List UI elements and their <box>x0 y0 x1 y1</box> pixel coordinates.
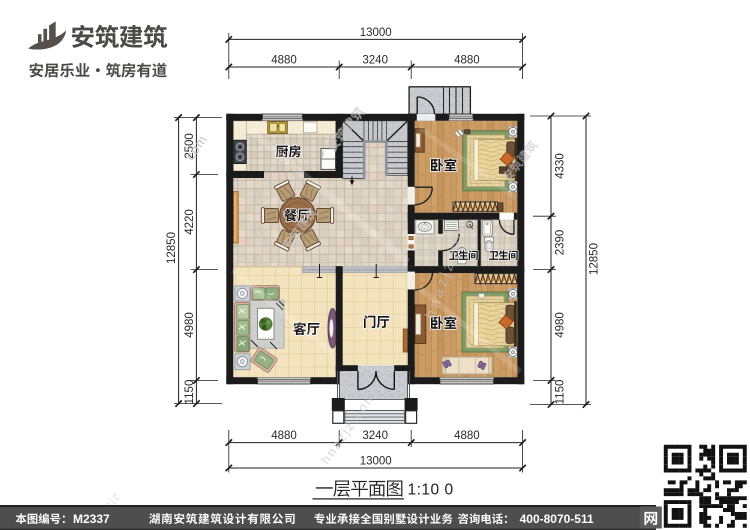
svg-text:4880: 4880 <box>271 430 297 442</box>
svg-text:3240: 3240 <box>362 54 388 66</box>
svg-text:400-8070-511: 400-8070-511 <box>520 512 594 526</box>
svg-text:4880: 4880 <box>271 54 297 66</box>
svg-text:4220: 4220 <box>184 209 196 235</box>
svg-text:4330: 4330 <box>555 153 567 179</box>
svg-text:1:10 0: 1:10 0 <box>408 481 454 498</box>
svg-text:13000: 13000 <box>360 27 392 39</box>
svg-text:M2337: M2337 <box>73 512 110 526</box>
svg-text:1150: 1150 <box>555 380 567 405</box>
svg-text:13000: 13000 <box>360 455 392 467</box>
svg-text:1150: 1150 <box>184 380 196 405</box>
svg-text:4980: 4980 <box>184 312 196 338</box>
svg-text:12850: 12850 <box>166 232 178 264</box>
svg-text:4880: 4880 <box>454 430 480 442</box>
svg-text:4880: 4880 <box>454 54 480 66</box>
svg-text:2390: 2390 <box>555 230 567 256</box>
svg-text:3240: 3240 <box>362 430 388 442</box>
svg-text:4980: 4980 <box>555 312 567 338</box>
svg-text:12850: 12850 <box>589 243 601 275</box>
